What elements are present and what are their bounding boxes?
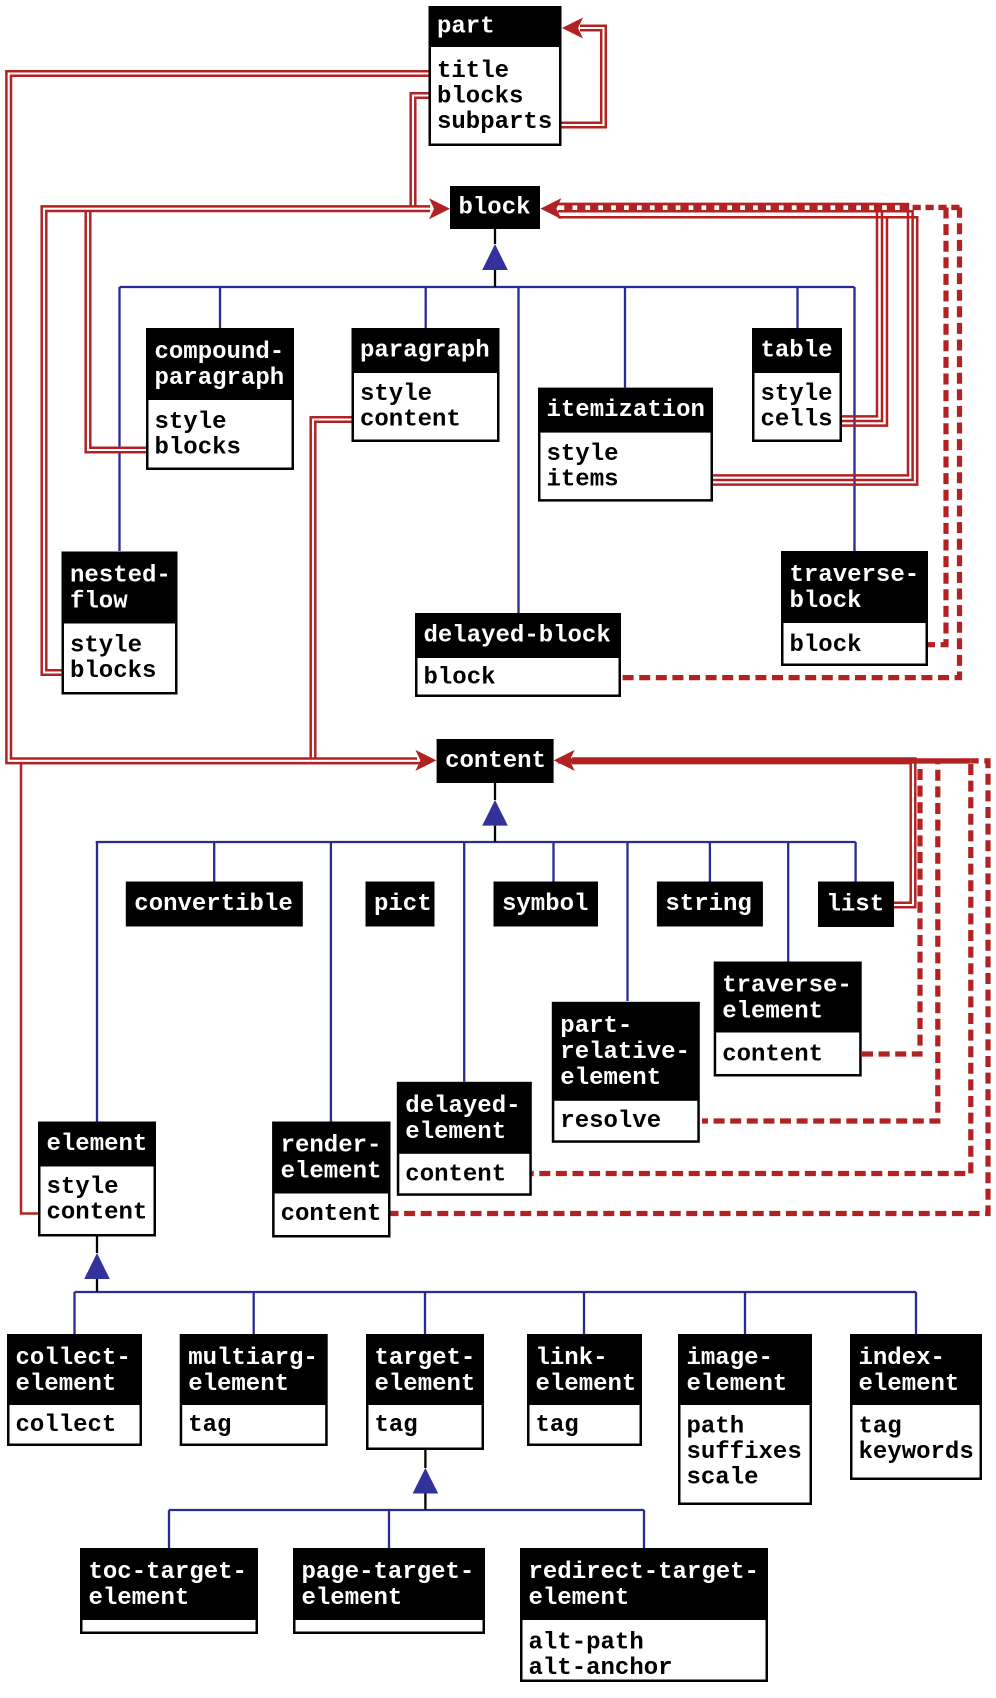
svg-text:block: block <box>790 588 862 615</box>
svg-text:blocks: blocks <box>70 658 156 685</box>
svg-text:convertible: convertible <box>134 891 292 918</box>
svg-text:blocks: blocks <box>155 435 241 462</box>
svg-text:collect-: collect- <box>16 1345 131 1372</box>
svg-text:element: element <box>536 1371 637 1398</box>
svg-text:relative-: relative- <box>560 1039 690 1066</box>
svg-text:target-: target- <box>375 1345 476 1372</box>
svg-text:style: style <box>547 441 619 468</box>
svg-text:list: list <box>827 891 885 918</box>
svg-text:tag: tag <box>375 1412 418 1439</box>
svg-text:element: element <box>687 1371 788 1398</box>
svg-text:keywords: keywords <box>859 1439 974 1466</box>
svg-text:delayed-: delayed- <box>405 1093 520 1120</box>
svg-text:pict: pict <box>374 891 432 918</box>
svg-text:element: element <box>188 1371 289 1398</box>
svg-text:index-: index- <box>859 1345 945 1372</box>
svg-text:compound-: compound- <box>155 339 285 366</box>
svg-text:scale: scale <box>687 1465 759 1492</box>
svg-text:multiarg-: multiarg- <box>188 1345 318 1372</box>
svg-text:subparts: subparts <box>437 109 552 136</box>
svg-text:path: path <box>687 1414 745 1441</box>
svg-text:content: content <box>281 1201 382 1228</box>
svg-text:content: content <box>445 748 546 775</box>
svg-text:suffixes: suffixes <box>687 1439 802 1466</box>
svg-text:link-: link- <box>536 1345 608 1372</box>
svg-text:element: element <box>859 1371 960 1398</box>
svg-text:table: table <box>761 338 833 365</box>
svg-text:symbol: symbol <box>502 891 588 918</box>
svg-text:items: items <box>547 467 619 494</box>
svg-text:element: element <box>281 1159 382 1186</box>
svg-text:nested-: nested- <box>70 563 171 590</box>
svg-text:part: part <box>437 14 495 41</box>
svg-text:style: style <box>155 409 227 436</box>
svg-text:content: content <box>722 1042 823 1069</box>
svg-text:page-target-: page-target- <box>302 1559 475 1586</box>
svg-text:traverse-: traverse- <box>790 562 920 589</box>
svg-text:resolve: resolve <box>560 1108 661 1135</box>
svg-text:element: element <box>302 1585 403 1612</box>
svg-text:redirect-target-: redirect-target- <box>529 1559 759 1586</box>
svg-text:style: style <box>70 633 142 660</box>
svg-text:element: element <box>722 999 823 1026</box>
svg-text:element: element <box>375 1371 476 1398</box>
svg-text:block: block <box>424 665 496 692</box>
svg-text:image-: image- <box>687 1345 773 1372</box>
svg-text:traverse-: traverse- <box>722 973 852 1000</box>
svg-text:flow: flow <box>70 589 128 616</box>
svg-text:paragraph: paragraph <box>360 338 490 365</box>
svg-text:style: style <box>761 381 833 408</box>
svg-text:itemization: itemization <box>547 397 705 424</box>
svg-text:element: element <box>47 1131 148 1158</box>
svg-text:block: block <box>459 195 531 222</box>
svg-text:toc-target-: toc-target- <box>89 1559 247 1586</box>
svg-text:style: style <box>47 1174 119 1201</box>
svg-text:content: content <box>405 1161 506 1188</box>
svg-text:element: element <box>529 1585 630 1612</box>
svg-text:element: element <box>16 1371 117 1398</box>
svg-text:element: element <box>89 1585 190 1612</box>
svg-text:alt-anchor: alt-anchor <box>529 1655 673 1682</box>
svg-text:tag: tag <box>188 1412 231 1439</box>
svg-text:tag: tag <box>536 1412 579 1439</box>
svg-text:block: block <box>790 632 862 659</box>
svg-text:element: element <box>405 1119 506 1146</box>
svg-text:tag: tag <box>859 1414 902 1441</box>
svg-text:blocks: blocks <box>437 84 523 111</box>
svg-text:content: content <box>47 1200 148 1227</box>
svg-text:string: string <box>665 891 751 918</box>
svg-text:title: title <box>437 58 509 85</box>
svg-text:part-: part- <box>560 1013 632 1040</box>
svg-text:collect: collect <box>16 1412 117 1439</box>
svg-text:cells: cells <box>761 407 833 434</box>
svg-text:delayed-block: delayed-block <box>424 623 611 650</box>
svg-text:element: element <box>560 1065 661 1092</box>
svg-text:paragraph: paragraph <box>155 365 285 392</box>
svg-text:render-: render- <box>281 1133 382 1160</box>
svg-text:content: content <box>360 407 461 434</box>
svg-text:alt-path: alt-path <box>529 1630 644 1657</box>
svg-text:style: style <box>360 381 432 408</box>
